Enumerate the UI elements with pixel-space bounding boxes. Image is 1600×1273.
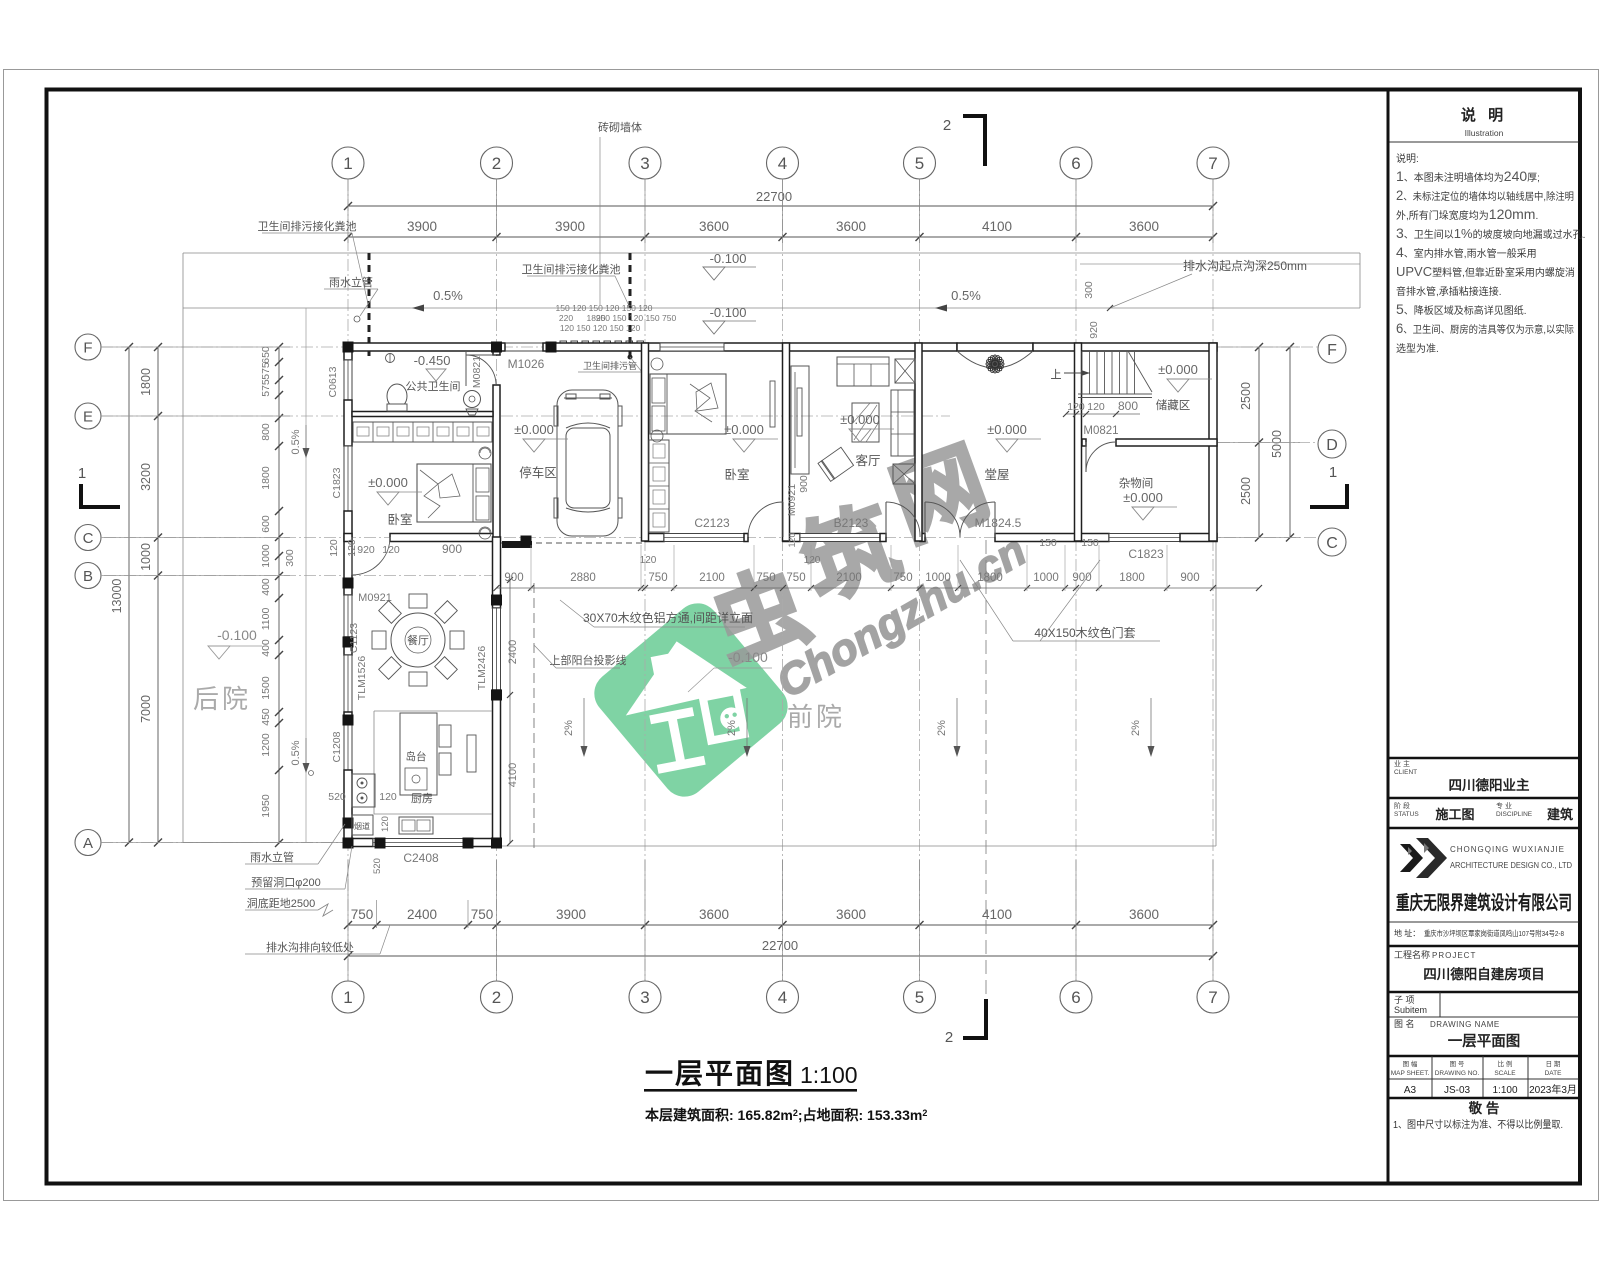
- svg-text:-0.100: -0.100: [728, 649, 768, 665]
- svg-text:2500: 2500: [1239, 382, 1253, 410]
- svg-text:C: C: [1326, 535, 1338, 552]
- svg-text:洞底距地2500: 洞底距地2500: [247, 896, 315, 910]
- svg-text:卫生间排污接化粪池: 卫生间排污接化粪池: [522, 262, 621, 276]
- svg-text:C1123: C1123: [348, 623, 360, 653]
- svg-text:DATE: DATE: [1545, 1070, 1563, 1077]
- svg-text:客厅: 客厅: [855, 453, 880, 468]
- svg-text:停车区: 停车区: [519, 465, 557, 480]
- svg-text:7: 7: [1208, 154, 1217, 173]
- svg-text:13000: 13000: [110, 579, 124, 614]
- svg-text:900: 900: [798, 475, 810, 493]
- svg-text:-0.100: -0.100: [710, 305, 747, 320]
- svg-text:JS-03: JS-03: [1444, 1085, 1471, 1096]
- svg-text:2100: 2100: [699, 572, 725, 584]
- svg-text:1:100: 1:100: [1492, 1085, 1517, 1096]
- svg-text:F: F: [83, 340, 92, 357]
- svg-text:M1824.5: M1824.5: [975, 516, 1022, 530]
- svg-text:卫生间排污接化粪池: 卫生间排污接化粪池: [258, 219, 357, 233]
- svg-text:750: 750: [471, 907, 494, 922]
- svg-text:3: 3: [640, 988, 649, 1007]
- svg-text:CLIENT: CLIENT: [1394, 769, 1417, 776]
- svg-text:120: 120: [640, 555, 657, 566]
- svg-text:6: 6: [1071, 988, 1080, 1007]
- svg-text:120: 120: [380, 816, 391, 832]
- svg-text:750: 750: [756, 572, 775, 584]
- svg-text:-0.450: -0.450: [414, 353, 451, 368]
- svg-text:7000: 7000: [139, 695, 153, 723]
- svg-text:Illustration: Illustration: [1465, 128, 1504, 138]
- svg-text:5: 5: [915, 154, 924, 173]
- svg-text:一层平面图: 一层平面图: [1448, 1033, 1521, 1050]
- svg-text:F: F: [1327, 342, 1337, 359]
- svg-text:120: 120: [787, 532, 797, 547]
- svg-text:800: 800: [1118, 399, 1138, 413]
- svg-text:堂屋: 堂屋: [984, 468, 1009, 482]
- svg-text:120: 120: [379, 791, 397, 803]
- svg-text:子 项: 子 项: [1394, 995, 1415, 1005]
- svg-text:雨水立管: 雨水立管: [329, 275, 373, 289]
- svg-text:B2123: B2123: [834, 516, 869, 530]
- svg-text:预留洞口φ200: 预留洞口φ200: [251, 876, 321, 889]
- svg-text:STATUS: STATUS: [1394, 811, 1419, 818]
- svg-text:5: 5: [915, 988, 924, 1007]
- svg-text:D: D: [1326, 437, 1338, 454]
- svg-text:2%: 2%: [726, 720, 738, 736]
- svg-text:业 主: 业 主: [1394, 759, 1410, 768]
- svg-text:M0921: M0921: [786, 484, 798, 516]
- svg-text:B: B: [83, 568, 93, 585]
- svg-text:专 业: 专 业: [1496, 801, 1512, 810]
- svg-text:储藏区: 储藏区: [1156, 398, 1191, 412]
- svg-text:3900: 3900: [556, 907, 586, 922]
- svg-text:0.5%: 0.5%: [290, 740, 302, 765]
- svg-text:900: 900: [1072, 572, 1091, 584]
- svg-text:750: 750: [893, 572, 912, 584]
- svg-text:C1208: C1208: [331, 731, 343, 762]
- svg-text:1: 1: [343, 988, 352, 1007]
- svg-text:后院: 后院: [193, 684, 251, 714]
- svg-text:C1823: C1823: [1128, 547, 1164, 561]
- svg-text:上: 上: [1051, 368, 1062, 381]
- svg-text:一层平面图: 一层平面图: [645, 1058, 795, 1089]
- svg-text:2: 2: [943, 117, 951, 134]
- svg-text:1800: 1800: [260, 466, 272, 490]
- svg-text:40X150木纹色门套: 40X150木纹色门套: [1034, 625, 1135, 640]
- svg-text:日 期: 日 期: [1546, 1060, 1561, 1068]
- svg-text:±0.000: ±0.000: [840, 412, 880, 427]
- svg-text:选型为准.: 选型为准.: [1396, 342, 1439, 355]
- svg-text:4100: 4100: [982, 907, 1012, 922]
- svg-text:1200: 1200: [260, 733, 272, 757]
- svg-text:1950: 1950: [260, 794, 272, 818]
- svg-text:150: 150: [1039, 537, 1057, 549]
- svg-text:7: 7: [1208, 988, 1217, 1007]
- svg-text:施工图: 施工图: [1435, 807, 1474, 822]
- svg-text:650: 650: [260, 346, 272, 364]
- svg-text:说明:: 说明:: [1396, 152, 1419, 165]
- svg-text:C2123: C2123: [694, 516, 730, 530]
- svg-text:TLM2426: TLM2426: [476, 646, 488, 691]
- svg-text:750: 750: [648, 572, 667, 584]
- svg-text:22700: 22700: [762, 938, 798, 953]
- svg-text:0.5%: 0.5%: [433, 288, 463, 303]
- svg-text:30X70木纹色铝方通,间距详立面: 30X70木纹色铝方通,间距详立面: [583, 610, 753, 625]
- svg-text:M1026: M1026: [508, 357, 545, 371]
- svg-text:4: 4: [778, 154, 787, 173]
- svg-text:ARCHITECTURE DESIGN CO., LTD: ARCHITECTURE DESIGN CO., LTD: [1450, 861, 1572, 870]
- svg-text:1: 1: [1329, 464, 1337, 481]
- svg-text:MAP SHEET.: MAP SHEET.: [1391, 1070, 1430, 1077]
- svg-text:22700: 22700: [756, 189, 792, 204]
- svg-text:±0.000: ±0.000: [514, 422, 554, 437]
- svg-text:2400: 2400: [407, 907, 437, 922]
- svg-text:750: 750: [351, 907, 374, 922]
- svg-text:5000: 5000: [1270, 430, 1284, 458]
- svg-text:2: 2: [492, 154, 501, 173]
- svg-text:M0821: M0821: [471, 356, 483, 388]
- svg-text:3600: 3600: [1129, 907, 1159, 922]
- svg-text:1100: 1100: [260, 608, 272, 631]
- svg-text:520: 520: [372, 858, 383, 874]
- svg-text:400: 400: [260, 578, 272, 596]
- svg-text:CHONGQING WUXIANJIE: CHONGQING WUXIANJIE: [1450, 845, 1565, 854]
- svg-text:3: 3: [640, 154, 649, 173]
- svg-text:排水沟排向较低处: 排水沟排向较低处: [266, 940, 354, 954]
- svg-text:TLM1526: TLM1526: [356, 656, 368, 701]
- svg-text:3600: 3600: [699, 907, 729, 922]
- svg-text:1800: 1800: [977, 572, 1003, 584]
- svg-text:120: 120: [1067, 401, 1085, 413]
- svg-text:4100: 4100: [982, 219, 1012, 234]
- svg-text:四川德阳自建房项目: 四川德阳自建房项目: [1423, 966, 1545, 982]
- svg-text:1: 1: [343, 154, 352, 173]
- svg-text:四川德阳业主: 四川德阳业主: [1449, 777, 1530, 793]
- svg-text:220: 220: [559, 313, 573, 323]
- svg-text:2100: 2100: [836, 572, 862, 584]
- svg-text:1000: 1000: [925, 572, 951, 584]
- svg-text:900: 900: [442, 542, 462, 556]
- svg-text:4: 4: [778, 988, 787, 1007]
- svg-text:SCALE: SCALE: [1494, 1070, 1516, 1077]
- svg-text:0.5%: 0.5%: [290, 429, 302, 454]
- svg-text:450: 450: [260, 708, 272, 726]
- svg-text:岛台: 岛台: [406, 750, 427, 763]
- svg-text:1、图中尺寸以标注为准、不得以比例量取.: 1、图中尺寸以标注为准、不得以比例量取.: [1393, 1118, 1563, 1131]
- svg-text:2: 2: [492, 988, 501, 1007]
- svg-text:120: 120: [346, 539, 358, 557]
- svg-text:餐厅: 餐厅: [407, 633, 429, 647]
- svg-text:575: 575: [260, 362, 272, 380]
- svg-text:DISCIPLINE: DISCIPLINE: [1496, 811, 1533, 818]
- svg-text:上部阳台投影线: 上部阳台投影线: [550, 653, 627, 667]
- svg-text:卫生间排污管: 卫生间排污管: [583, 360, 637, 371]
- svg-text:说 明: 说 明: [1461, 106, 1507, 124]
- svg-text:重庆市沙坪坝区覃家岗街道凤鸣山107号附34号2-8: 重庆市沙坪坝区覃家岗街道凤鸣山107号附34号2-8: [1424, 928, 1564, 938]
- svg-text:1000: 1000: [260, 544, 272, 568]
- svg-text:920: 920: [357, 544, 375, 556]
- svg-text:图 号: 图 号: [1450, 1060, 1465, 1068]
- svg-text:2%: 2%: [1130, 720, 1142, 736]
- svg-text:300: 300: [1083, 281, 1095, 299]
- svg-text:A: A: [83, 835, 93, 852]
- svg-text:雨水立管: 雨水立管: [250, 850, 294, 864]
- svg-text:900: 900: [504, 572, 523, 584]
- svg-text:C2408: C2408: [403, 851, 439, 865]
- svg-text:3600: 3600: [836, 219, 866, 234]
- svg-text:3600: 3600: [836, 907, 866, 922]
- svg-text:音排水管,承插粘接连接.: 音排水管,承插粘接连接.: [1396, 285, 1502, 298]
- svg-text:阶 段: 阶 段: [1394, 801, 1410, 810]
- svg-text:920: 920: [1088, 321, 1100, 339]
- svg-text:300: 300: [284, 549, 296, 567]
- svg-text:烟道: 烟道: [354, 821, 370, 831]
- svg-text:敬 告: 敬 告: [1468, 1100, 1500, 1116]
- svg-text:2023年3月: 2023年3月: [1529, 1083, 1577, 1096]
- svg-text:900: 900: [1180, 572, 1199, 584]
- svg-text:厨房: 厨房: [411, 792, 433, 805]
- svg-text:地 址：: 地 址：: [1394, 928, 1420, 938]
- svg-text:图 幅: 图 幅: [1403, 1059, 1418, 1068]
- svg-text:比 例: 比 例: [1498, 1059, 1513, 1068]
- svg-text:3900: 3900: [407, 219, 437, 234]
- svg-text:3600: 3600: [699, 219, 729, 234]
- svg-text:A3: A3: [1404, 1085, 1417, 1096]
- svg-text:排水沟起点沟深250mm: 排水沟起点沟深250mm: [1183, 259, 1307, 273]
- svg-text:3900: 3900: [555, 219, 585, 234]
- svg-text:2: 2: [945, 1029, 953, 1046]
- svg-text:6: 6: [1071, 154, 1080, 173]
- svg-text:C0613: C0613: [327, 366, 339, 397]
- svg-text:4100: 4100: [507, 763, 519, 787]
- svg-text:C: C: [83, 530, 94, 547]
- svg-text:-0.100: -0.100: [710, 251, 747, 266]
- svg-text:2%: 2%: [936, 720, 948, 736]
- svg-text:1000: 1000: [139, 543, 153, 571]
- svg-text:2880: 2880: [570, 572, 596, 584]
- svg-text:120: 120: [1087, 401, 1105, 413]
- svg-text:2%: 2%: [563, 720, 575, 736]
- svg-text:±0.000: ±0.000: [368, 475, 408, 490]
- svg-text:1000: 1000: [1033, 572, 1059, 584]
- svg-text:-0.100: -0.100: [217, 627, 257, 643]
- svg-text:砖砌墙体: 砖砌墙体: [598, 120, 642, 134]
- svg-text:卧室: 卧室: [387, 512, 412, 527]
- svg-text:600: 600: [260, 515, 272, 533]
- svg-text:E: E: [83, 409, 93, 426]
- svg-text:575: 575: [260, 379, 272, 397]
- svg-text:PROJECT: PROJECT: [1432, 951, 1476, 960]
- svg-text:±0.000: ±0.000: [987, 422, 1027, 437]
- svg-text:520: 520: [328, 791, 346, 803]
- svg-text:0.5%: 0.5%: [951, 288, 981, 303]
- svg-text:±0.000: ±0.000: [1123, 490, 1163, 505]
- svg-text:1800: 1800: [139, 368, 153, 396]
- svg-text:M0821: M0821: [1083, 425, 1118, 437]
- svg-text:250 150 120 150 750: 250 150 120 150 750: [596, 313, 677, 323]
- svg-text:120: 120: [328, 539, 340, 557]
- svg-text:前院: 前院: [787, 702, 845, 732]
- svg-text:工程名称: 工程名称: [1394, 949, 1430, 960]
- svg-text:3600: 3600: [1129, 219, 1159, 234]
- svg-text:建筑: 建筑: [1547, 807, 1573, 822]
- svg-text:800: 800: [260, 423, 272, 441]
- svg-text:1500: 1500: [260, 676, 272, 700]
- svg-text:150 120 150 120 150 120: 150 120 150 120 150 120: [556, 303, 653, 313]
- svg-text:120: 120: [804, 555, 821, 566]
- svg-text:C1823: C1823: [331, 467, 343, 498]
- svg-text:杂物间: 杂物间: [1119, 476, 1154, 490]
- svg-text:2500: 2500: [1239, 477, 1253, 505]
- svg-text:750: 750: [786, 572, 805, 584]
- svg-text:1800: 1800: [1119, 572, 1145, 584]
- svg-text:1: 1: [78, 465, 86, 482]
- svg-text:120: 120: [382, 544, 400, 556]
- svg-text:本层建筑面积: 165.82m2;占地面积: 153.33m: 本层建筑面积: 165.82m2;占地面积: 153.33m2: [645, 1107, 927, 1123]
- svg-text:Subitem: Subitem: [1394, 1005, 1427, 1015]
- svg-text:2400: 2400: [507, 640, 519, 664]
- svg-text:150: 150: [1081, 537, 1099, 549]
- svg-text:DRAWING NAME: DRAWING NAME: [1430, 1020, 1500, 1029]
- svg-text:3200: 3200: [139, 463, 153, 491]
- svg-text:120 150 120 150 120: 120 150 120 150 120: [560, 323, 641, 333]
- svg-text:±0.000: ±0.000: [1158, 362, 1198, 377]
- svg-text:卧室: 卧室: [724, 467, 749, 482]
- svg-text:图 名: 图 名: [1394, 1018, 1415, 1029]
- svg-text:±0.000: ±0.000: [724, 422, 764, 437]
- svg-text:400: 400: [260, 639, 272, 657]
- svg-text:公共卫生间: 公共卫生间: [406, 379, 461, 393]
- svg-text:1:100: 1:100: [800, 1062, 858, 1088]
- svg-text:DRAWING NO.: DRAWING NO.: [1435, 1070, 1480, 1077]
- svg-text:重庆无限界建筑设计有限公司: 重庆无限界建筑设计有限公司: [1396, 891, 1572, 914]
